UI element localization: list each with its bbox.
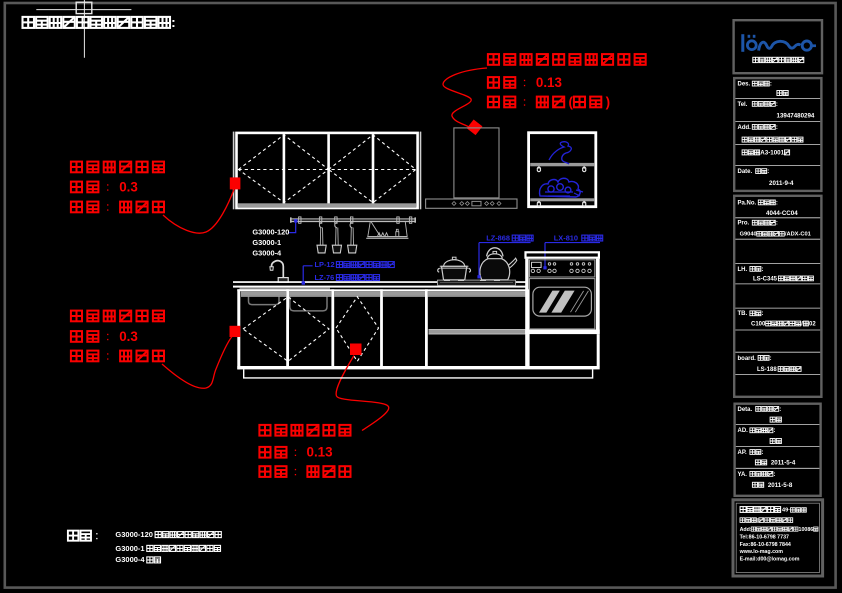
svg-text:G3000-1: G3000-1	[252, 238, 281, 247]
svg-text:G3000-120: G3000-120	[252, 228, 289, 237]
svg-text:/ADX-C01: /ADX-C01	[785, 232, 811, 238]
svg-text::: :	[776, 102, 778, 108]
svg-text:Tel.: Tel.	[738, 102, 750, 108]
svg-text::: :	[171, 15, 176, 30]
svg-text:YA.: YA.	[738, 472, 749, 478]
svg-text:Deta.: Deta.	[738, 407, 754, 413]
svg-text:G3000-120: G3000-120	[115, 530, 155, 539]
svg-text:LP-12: LP-12	[315, 260, 335, 269]
svg-text::: :	[776, 200, 778, 206]
svg-text::: :	[767, 169, 769, 175]
svg-text:Des.: Des.	[738, 82, 752, 88]
svg-text:Fax:86-10-6798 7844: Fax:86-10-6798 7844	[740, 542, 791, 548]
svg-text:Date.: Date.	[738, 169, 754, 175]
svg-text:LZ-868: LZ-868	[486, 234, 510, 243]
svg-text:4044-CC04: 4044-CC04	[766, 210, 798, 217]
svg-text:0.3: 0.3	[119, 329, 138, 344]
svg-text:10086: 10086	[799, 527, 814, 533]
svg-text:www.lo-mag.com: www.lo-mag.com	[739, 549, 784, 555]
svg-text:Add.: Add.	[738, 125, 753, 131]
svg-text:board.: board.	[738, 356, 758, 362]
svg-text:Pro.: Pro.	[738, 221, 751, 227]
svg-text::: :	[776, 221, 778, 227]
svg-text:13947480294: 13947480294	[777, 112, 815, 119]
svg-text:02: 02	[809, 321, 816, 327]
svg-text:AD.: AD.	[738, 428, 750, 434]
svg-text::: :	[762, 311, 764, 317]
svg-text:A3-1001: A3-1001	[760, 149, 784, 156]
svg-text:AP.: AP.	[738, 450, 749, 456]
svg-text:C100: C100	[751, 321, 766, 327]
svg-text:0.13: 0.13	[307, 445, 333, 460]
svg-text:2011-5-4: 2011-5-4	[767, 459, 795, 466]
svg-text:49·: 49·	[782, 508, 790, 514]
svg-text:E-mail:d00@lomag.com: E-mail:d00@lomag.com	[740, 557, 800, 563]
svg-text:LH.: LH.	[738, 267, 749, 273]
svg-text::: :	[770, 356, 772, 362]
svg-text:Add:: Add:	[740, 527, 752, 533]
svg-text::: :	[774, 472, 776, 478]
svg-text:LX-810: LX-810	[554, 234, 580, 243]
svg-text:LS-C345: LS-C345	[753, 276, 778, 282]
svg-text:G3000-4: G3000-4	[252, 248, 282, 257]
svg-text:Pa.No.: Pa.No.	[738, 200, 758, 206]
svg-text:G9040: G9040	[740, 232, 757, 238]
svg-text::: :	[776, 125, 778, 131]
svg-text::: :	[762, 267, 764, 273]
svg-text:G3000-4: G3000-4	[115, 555, 146, 564]
svg-text:Tel:86-10-6798 7737: Tel:86-10-6798 7737	[740, 534, 789, 540]
svg-text:0.13: 0.13	[536, 75, 562, 90]
svg-text:TB.: TB.	[738, 311, 749, 317]
svg-text:LS-188: LS-188	[757, 367, 777, 373]
svg-text::: :	[770, 82, 772, 88]
svg-text::: :	[762, 450, 764, 456]
svg-text:2011-5-8: 2011-5-8	[764, 482, 792, 489]
svg-text:G3000-1: G3000-1	[115, 544, 146, 553]
svg-text:2011-9-4: 2011-9-4	[769, 180, 794, 187]
svg-text::: :	[779, 407, 781, 413]
svg-text:(: (	[569, 94, 574, 109]
svg-text:LZ-76: LZ-76	[315, 273, 335, 282]
svg-text:0.3: 0.3	[119, 179, 138, 194]
svg-text:): )	[606, 94, 610, 109]
svg-text::: :	[774, 428, 776, 434]
